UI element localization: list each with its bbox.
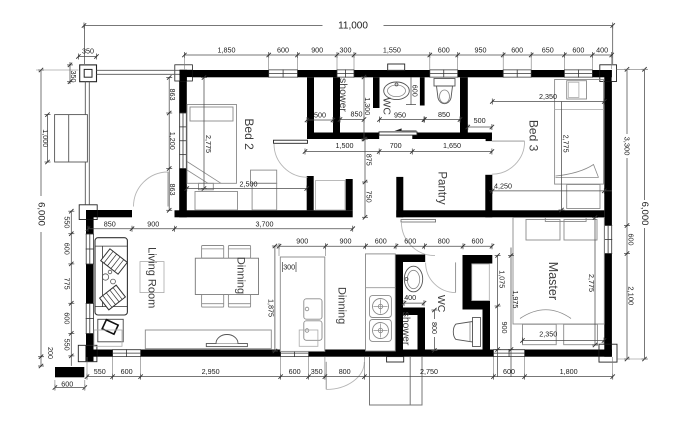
svg-text:1,650: 1,650	[443, 141, 461, 150]
svg-text:700: 700	[390, 141, 402, 150]
svg-text:850: 850	[438, 110, 450, 119]
svg-text:950: 950	[475, 46, 487, 55]
svg-text:2,500: 2,500	[240, 180, 258, 189]
svg-text:3,700: 3,700	[256, 220, 274, 229]
svg-text:500: 500	[314, 110, 326, 119]
svg-text:200: 200	[46, 347, 55, 359]
svg-text:550: 550	[63, 339, 72, 351]
svg-text:2,950: 2,950	[202, 367, 220, 376]
svg-text:800: 800	[438, 237, 450, 246]
svg-text:1,075: 1,075	[497, 270, 506, 288]
svg-text:1,975: 1,975	[511, 290, 520, 308]
svg-text:950: 950	[394, 110, 406, 119]
svg-text:1,300: 1,300	[363, 97, 372, 115]
svg-text:Dinning: Dinning	[336, 287, 348, 324]
svg-text:600: 600	[511, 46, 523, 55]
svg-text:2,350: 2,350	[539, 92, 557, 101]
svg-text:600: 600	[410, 85, 419, 97]
svg-text:1,000: 1,000	[41, 129, 50, 147]
svg-text:600: 600	[63, 312, 72, 324]
svg-text:1,550: 1,550	[383, 46, 401, 55]
svg-text:2,100: 2,100	[627, 286, 636, 305]
svg-text:863: 863	[168, 89, 177, 101]
svg-text:WC: WC	[380, 97, 392, 115]
svg-text:550: 550	[63, 216, 72, 228]
svg-text:850: 850	[351, 110, 363, 119]
svg-text:600: 600	[572, 46, 584, 55]
svg-text:875: 875	[364, 154, 373, 166]
svg-text:1,875: 1,875	[267, 299, 276, 317]
svg-text:2,750: 2,750	[420, 367, 438, 376]
svg-text:900: 900	[147, 220, 159, 229]
svg-text:300: 300	[283, 263, 295, 272]
svg-text:Bed 3: Bed 3	[527, 120, 541, 152]
svg-text:863: 863	[168, 184, 177, 196]
svg-text:Living Room: Living Room	[145, 247, 157, 308]
svg-text:600: 600	[404, 237, 416, 246]
svg-text:2,775: 2,775	[204, 135, 213, 153]
svg-text:750: 750	[364, 191, 373, 203]
svg-text:Bed 2: Bed 2	[242, 118, 256, 150]
svg-text:4,250: 4,250	[494, 182, 512, 191]
svg-text:1,200: 1,200	[168, 132, 177, 150]
svg-text:shower: shower	[337, 78, 349, 112]
svg-text:850: 850	[104, 220, 116, 229]
svg-text:900: 900	[311, 46, 323, 55]
svg-text:600: 600	[61, 379, 73, 388]
svg-text:Dinning: Dinning	[234, 257, 246, 294]
svg-text:600: 600	[121, 367, 133, 376]
svg-text:600: 600	[277, 46, 289, 55]
svg-text:600: 600	[503, 367, 515, 376]
svg-text:400: 400	[404, 293, 416, 302]
svg-text:3,300: 3,300	[623, 137, 632, 156]
svg-text:2,775: 2,775	[562, 135, 571, 153]
svg-text:6,000: 6,000	[36, 202, 47, 226]
svg-text:600: 600	[438, 46, 450, 55]
svg-text:350: 350	[311, 367, 323, 376]
svg-text:600: 600	[289, 367, 301, 376]
svg-text:500: 500	[474, 116, 486, 125]
svg-text:1,850: 1,850	[218, 46, 236, 55]
svg-text:800: 800	[339, 367, 351, 376]
svg-text:600: 600	[63, 243, 72, 255]
svg-text:300: 300	[340, 46, 352, 55]
svg-text:400: 400	[596, 46, 608, 55]
svg-text:650: 650	[542, 46, 554, 55]
svg-text:600: 600	[375, 237, 387, 246]
svg-text:600: 600	[472, 237, 484, 246]
svg-text:800: 800	[430, 322, 439, 334]
svg-text:550: 550	[94, 367, 106, 376]
svg-text:775: 775	[63, 278, 72, 290]
svg-text:6,000: 6,000	[639, 202, 650, 226]
svg-text:Pantry: Pantry	[436, 171, 448, 204]
svg-text:2,775: 2,775	[587, 274, 596, 292]
svg-text:600: 600	[627, 234, 636, 246]
svg-text:11,000: 11,000	[338, 20, 368, 31]
svg-text:1,800: 1,800	[560, 367, 578, 376]
svg-text:900: 900	[340, 237, 352, 246]
svg-text:Master: Master	[546, 262, 560, 300]
svg-text:900: 900	[500, 322, 509, 334]
svg-text:350: 350	[82, 47, 94, 56]
svg-text:1,500: 1,500	[336, 141, 354, 150]
svg-text:900: 900	[296, 237, 308, 246]
svg-text:2,350: 2,350	[539, 329, 557, 338]
svg-text:shower: shower	[400, 312, 412, 346]
